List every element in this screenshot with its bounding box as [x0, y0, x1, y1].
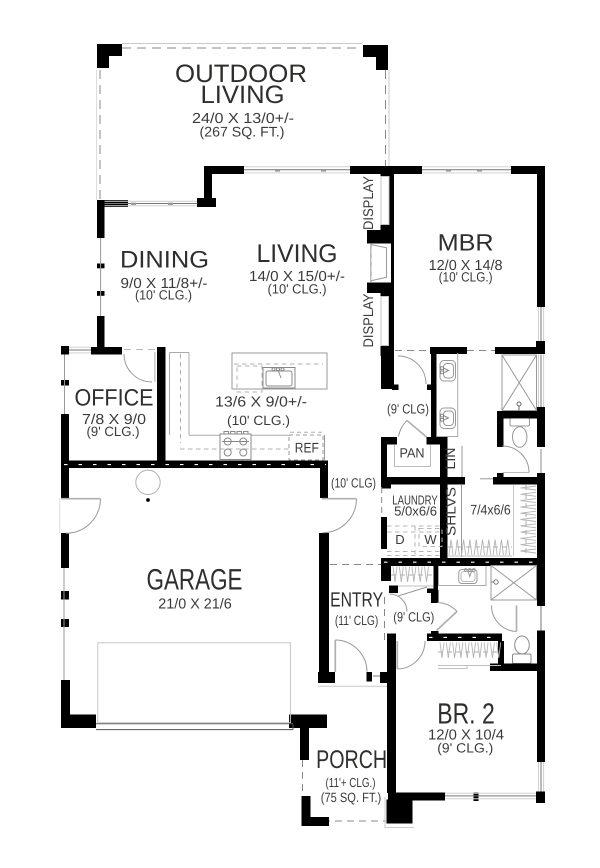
- svg-text:DINING: DINING: [120, 247, 209, 274]
- svg-text:(10' CLG.): (10' CLG.): [135, 288, 192, 303]
- svg-text:LIN: LIN: [442, 448, 458, 470]
- svg-text:(10' CLG.): (10' CLG.): [268, 282, 327, 297]
- svg-text:SHLVS: SHLVS: [443, 487, 459, 536]
- svg-text:OFFICE: OFFICE: [75, 386, 154, 412]
- svg-text:MBR: MBR: [438, 231, 494, 257]
- svg-text:DISPLAY: DISPLAY: [360, 293, 376, 348]
- svg-text:7/4x6/6: 7/4x6/6: [470, 502, 511, 518]
- svg-text:(11'+ CLG.): (11'+ CLG.): [326, 775, 376, 790]
- svg-text:(9' CLG.): (9' CLG.): [87, 424, 140, 439]
- svg-text:13/6 X 9/0+/-: 13/6 X 9/0+/-: [215, 395, 307, 411]
- svg-text:DISPLAY: DISPLAY: [360, 175, 376, 230]
- svg-text:(75 SQ. FT.): (75 SQ. FT.): [321, 790, 382, 805]
- svg-text:LIVING: LIVING: [257, 240, 338, 268]
- svg-text:(267 SQ. FT.): (267 SQ. FT.): [200, 124, 285, 140]
- svg-text:ENTRY: ENTRY: [330, 589, 383, 612]
- svg-text:D: D: [395, 532, 404, 547]
- svg-text:LIVING: LIVING: [201, 81, 285, 109]
- svg-text:(9' CLG): (9' CLG): [393, 609, 434, 624]
- svg-text:(10' CLG): (10' CLG): [331, 476, 376, 491]
- svg-text:W: W: [424, 532, 437, 547]
- svg-text:(9' CLG): (9' CLG): [387, 402, 429, 417]
- svg-text:21/0 X 21/6: 21/0 X 21/6: [158, 597, 232, 613]
- svg-text:REF: REF: [295, 440, 319, 456]
- svg-text:PORCH: PORCH: [316, 746, 387, 774]
- svg-text:(9' CLG.): (9' CLG.): [437, 741, 493, 756]
- svg-text:(11' CLG): (11' CLG): [335, 613, 379, 628]
- svg-text:GARAGE: GARAGE: [147, 564, 243, 597]
- svg-text:BR. 2: BR. 2: [437, 698, 495, 730]
- svg-text:(10' CLG.): (10' CLG.): [439, 270, 493, 285]
- svg-text:5/0x6/6: 5/0x6/6: [394, 503, 437, 518]
- svg-text:PAN: PAN: [400, 446, 425, 461]
- svg-text:(10' CLG.): (10' CLG.): [227, 413, 290, 428]
